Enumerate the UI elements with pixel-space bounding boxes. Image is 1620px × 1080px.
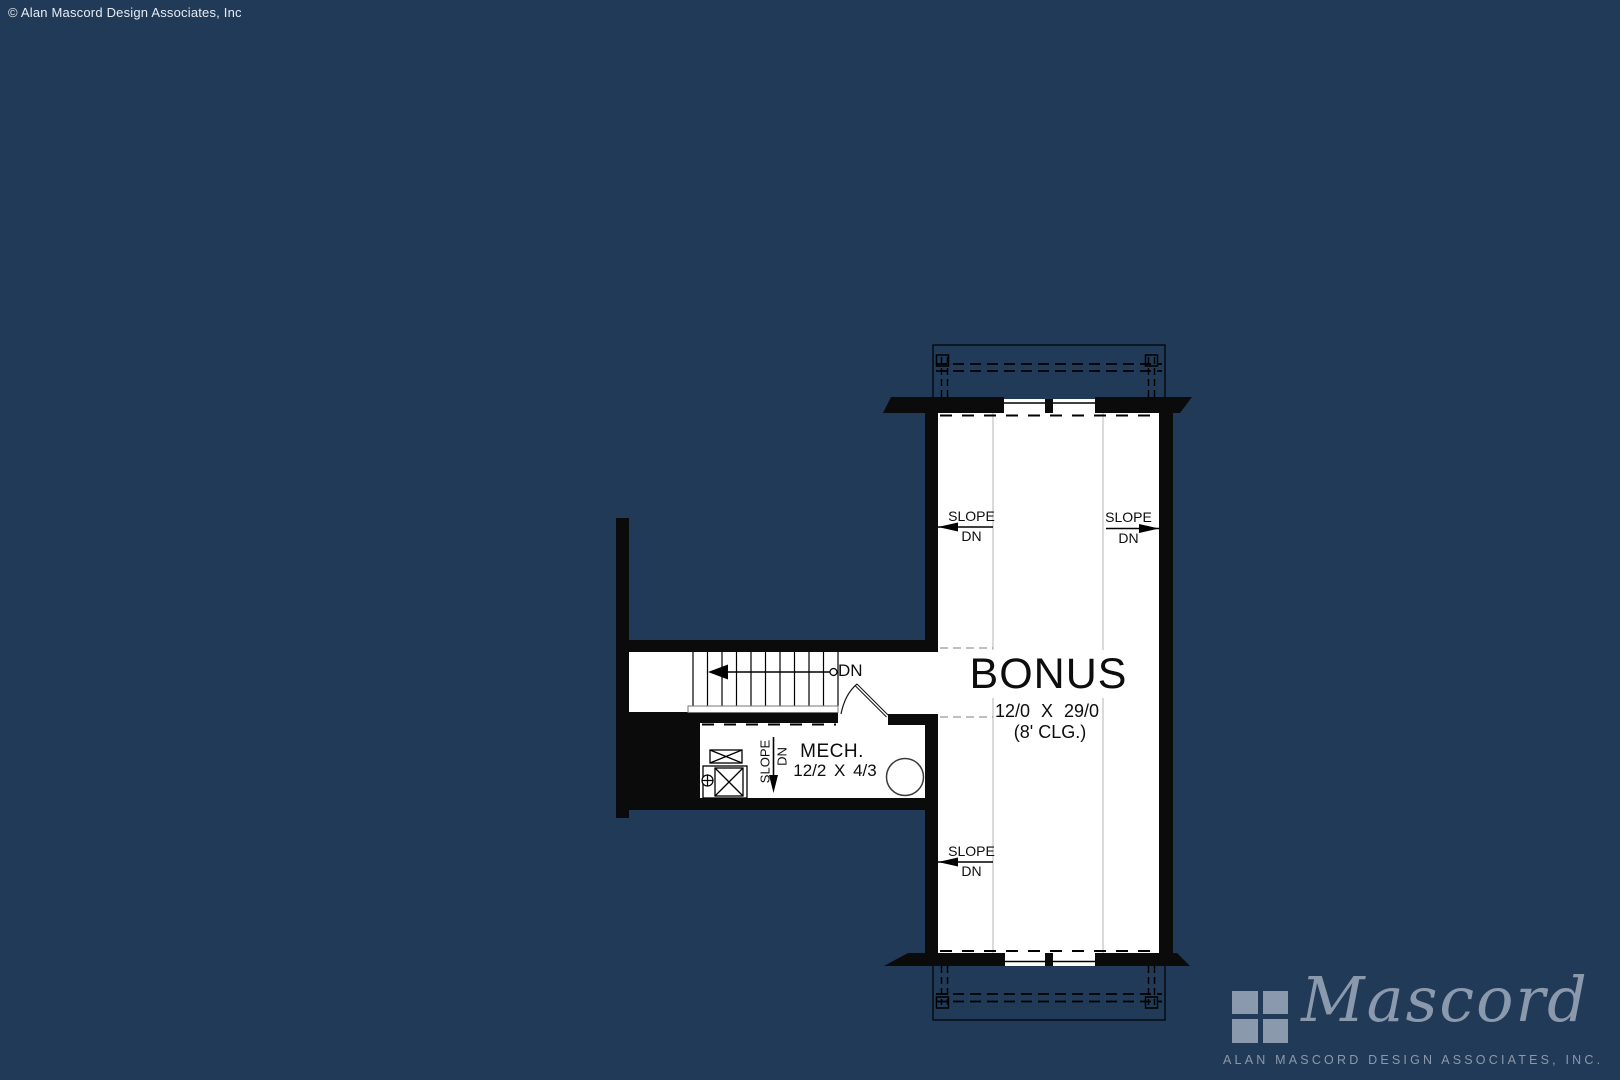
bonus-room-dimensions: 12/0 X 29/0	[967, 702, 1127, 721]
valve-symbol	[702, 775, 713, 786]
slope-label-top-right: SLOPE	[1101, 510, 1156, 525]
bottom-wall-right	[1095, 953, 1190, 966]
door-jamb-wall	[888, 714, 925, 725]
window-pane	[1232, 991, 1258, 1014]
east-wall	[1159, 397, 1173, 966]
mech-room-dimensions: 12/2 X 4/3	[775, 762, 895, 780]
stair-nosing-strip	[688, 706, 838, 713]
floor-plan-drawing	[0, 0, 1620, 1080]
mascord-logo: Mascord ALAN MASCORD DESIGN ASSOCIATES, …	[1215, 965, 1620, 1080]
dn-label-top-right: DN	[1101, 531, 1156, 546]
slope-label-mech: SLOPE	[758, 717, 773, 807]
dn-label-bottom-left: DN	[944, 864, 999, 879]
slope-label-top-left: SLOPE	[944, 509, 999, 524]
top-wall-left	[883, 397, 1004, 413]
roof-deck-top	[933, 345, 1165, 402]
dn-label-mech: DN	[775, 712, 790, 802]
top-wall-right	[1095, 397, 1192, 413]
top-wall-post	[1045, 399, 1053, 413]
roof-deck-bottom	[933, 962, 1165, 1020]
bonus-ceiling-label: (8' CLG.)	[970, 723, 1130, 742]
west-wall-lower	[925, 714, 938, 966]
west-wall-upper	[925, 401, 938, 652]
mascord-subtitle-text: ALAN MASCORD DESIGN ASSOCIATES, INC.	[1223, 1053, 1620, 1067]
wall-poche	[616, 712, 700, 810]
stair-hall-north-wall	[616, 640, 938, 652]
screenshot-stage: © Alan Mascord Design Associates, Inc	[0, 0, 1620, 1080]
slope-label-bottom-left: SLOPE	[944, 844, 999, 859]
bonus-room-label: BONUS	[938, 652, 1159, 697]
bottom-wall-post	[1045, 953, 1053, 966]
window-pane	[1232, 1019, 1258, 1043]
dn-label-top-left: DN	[944, 529, 999, 544]
mech-room-label: MECH.	[772, 742, 892, 762]
door-opening	[838, 710, 888, 724]
stair-dn-label: DN	[838, 662, 878, 680]
stair-hall-floor	[629, 650, 938, 714]
furnace-symbol-small	[710, 750, 742, 763]
bottom-wall-left	[884, 953, 1005, 966]
mascord-script-text: Mascord	[1270, 963, 1620, 1036]
